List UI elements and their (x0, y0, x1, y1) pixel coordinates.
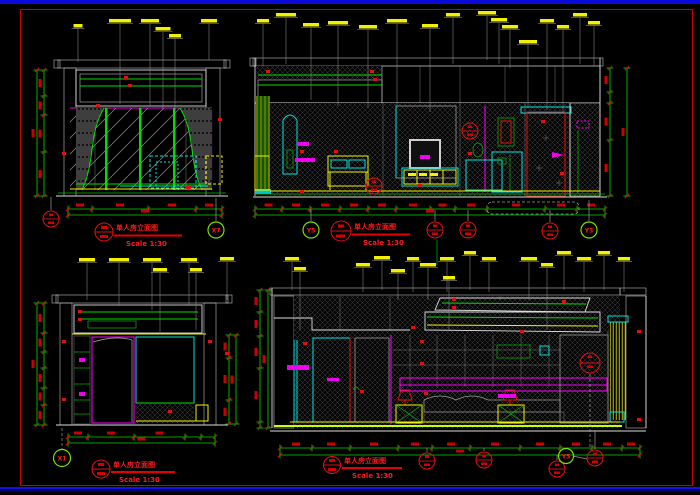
ceiling-slab (253, 58, 603, 66)
annotation-label (294, 267, 306, 271)
dimension-text (255, 297, 258, 305)
dimension-text (39, 393, 42, 401)
wall-left (60, 303, 72, 425)
title-underline (114, 235, 182, 237)
annotation-label (557, 251, 571, 255)
annotation-label (181, 258, 197, 262)
dimension-text (327, 443, 335, 446)
red-note-mark (420, 362, 424, 365)
dimension-text (32, 360, 35, 368)
grid-bubble-y5-top: Y5 (303, 222, 319, 238)
yellow-note-mark (430, 173, 438, 176)
dimension-text (409, 204, 417, 207)
dimension-text (156, 432, 164, 435)
annotation-label (443, 276, 455, 280)
dimension-text (32, 129, 35, 137)
annotation-label (257, 19, 269, 23)
dimension-text (263, 355, 266, 363)
red-note-mark (370, 70, 374, 73)
red-note-mark (520, 330, 524, 333)
annotation-label (491, 18, 507, 22)
red-note-mark (78, 310, 82, 313)
dimension-text (255, 348, 258, 356)
mirror (136, 337, 194, 403)
curtain-strip (256, 96, 270, 192)
annotation-label (391, 269, 405, 273)
annotation-label (201, 19, 217, 23)
wood-trim-strip (74, 336, 90, 424)
dimension-text (39, 79, 42, 87)
dimension-text (321, 204, 329, 207)
title-underline (111, 471, 175, 473)
leader-line (573, 456, 587, 459)
annotation-label (541, 263, 553, 267)
annotation-label (374, 256, 390, 260)
dimension-text (370, 443, 378, 446)
title-block-window-wall: 单人房立面图 Scale 1:30 (95, 223, 182, 248)
dimension-text (627, 443, 635, 446)
annotation-label (540, 19, 554, 23)
red-note-mark (78, 318, 82, 321)
dimension-text (39, 102, 42, 110)
dimension-text (512, 204, 520, 207)
drawing-title: 单人房立面图 (116, 223, 158, 232)
dimension-text (224, 408, 227, 416)
annotation-label (482, 257, 496, 261)
red-note-mark (62, 152, 66, 155)
annotation-label (521, 257, 537, 261)
red-note-mark (373, 78, 377, 81)
annotation-label (573, 13, 587, 17)
title-block-desk-tv-wall: 单人房立面图 Scale 1:30 (331, 221, 410, 247)
red-note-mark (452, 306, 456, 309)
door-leaf-curve (93, 338, 132, 422)
red-note-mark (420, 340, 424, 343)
annotation-label (387, 19, 407, 23)
red-note-mark (452, 298, 456, 301)
annotation-label (74, 24, 83, 28)
status-bar-line (0, 487, 700, 489)
annotation-label (109, 19, 131, 23)
grid-bubble-label: X7 (212, 228, 221, 235)
annotation-label (446, 13, 460, 17)
dimension-text (74, 432, 82, 435)
drawing-canvas: X7 Y5 Y3 X1 Y5 单人房立面图 Scale 1:30 (0, 0, 700, 495)
red-note-mark (300, 150, 304, 153)
magenta-note-mark (79, 358, 85, 362)
red-note-mark (562, 300, 566, 303)
annotation-label (153, 268, 167, 272)
magenta-note-mark (420, 155, 430, 159)
dimension-text (39, 339, 42, 347)
dimension-text (350, 204, 358, 207)
dimension-text (168, 204, 176, 207)
annotation-label (420, 263, 436, 267)
ceiling-bulkhead (258, 80, 382, 103)
annotation-label (190, 268, 202, 272)
annotation-label (143, 258, 161, 262)
annotation-label (464, 251, 476, 255)
dimension-text (378, 204, 386, 207)
dimension-text (39, 130, 42, 138)
red-note-mark (411, 326, 415, 329)
magenta-note-mark (79, 392, 85, 396)
annotation-label (519, 40, 537, 44)
magenta-note-mark (287, 365, 309, 370)
wall-field (294, 296, 620, 428)
dimension-text (536, 443, 544, 446)
wall-right (626, 296, 646, 428)
dimension-text (255, 391, 258, 399)
red-note-mark (128, 84, 132, 87)
ceiling-slab (270, 288, 620, 295)
dimension-text (491, 443, 499, 446)
grid-bubble-label: Y3 (584, 228, 594, 235)
annotation-label (285, 257, 299, 261)
dimension-text (467, 204, 475, 207)
red-note-mark (62, 340, 66, 343)
curtain-pelmet (76, 70, 206, 106)
yellow-note-mark (408, 173, 416, 176)
dimension-text (265, 204, 273, 207)
dimension-text (292, 204, 300, 207)
annotation-label (478, 11, 496, 15)
red-note-mark (225, 352, 229, 355)
dimension-text (292, 443, 300, 446)
vent-grille (88, 321, 136, 328)
dimension-text (138, 438, 146, 441)
dimension-text (255, 320, 258, 328)
red-note-mark (300, 190, 304, 193)
dimension-text (447, 443, 455, 446)
dimension-text (572, 443, 580, 446)
annotation-label (618, 257, 630, 261)
annotation-label (109, 258, 129, 262)
cabinet-small (196, 405, 208, 421)
annotation-label (359, 25, 377, 29)
ceiling-band (382, 66, 600, 103)
note-balloon (487, 202, 579, 214)
red-note-mark (124, 76, 128, 79)
dimension-text (231, 376, 234, 384)
magenta-note-mark (498, 394, 516, 398)
dimension-text (205, 204, 213, 207)
cad-application-window: X7 Y5 Y3 X1 Y5 单人房立面图 Scale 1:30 (0, 0, 700, 495)
magenta-note-mark (327, 378, 339, 381)
dimension-text (605, 76, 608, 84)
annotation-label (577, 257, 591, 261)
dimension-text (439, 204, 447, 207)
dimension-text (76, 204, 84, 207)
grid-bubble-label: Y5 (306, 228, 316, 235)
red-note-mark (186, 186, 191, 189)
annotation-label (220, 257, 234, 261)
drawing-scale: Scale 1:30 (126, 240, 167, 248)
red-note-mark (360, 390, 364, 393)
status-bar-line-2 (0, 490, 700, 492)
grid-bubble-y3: Y3 (581, 222, 597, 238)
annotation-label (598, 251, 610, 255)
elevation-window-wall (54, 60, 230, 196)
dimension-text (603, 443, 611, 446)
drawing-scale: Scale 1:30 (119, 476, 160, 484)
red-note-mark (266, 70, 270, 73)
tv-screen (410, 140, 440, 168)
dimension-text (116, 204, 124, 207)
red-note-mark (218, 118, 222, 121)
annotation-label (79, 258, 95, 262)
drawing-title: 单人房立面图 (354, 222, 396, 231)
ceiling-slab (56, 295, 228, 303)
annotation-label (407, 257, 419, 261)
dimension-text (224, 343, 227, 351)
dimension-text (224, 375, 227, 383)
yellow-note-mark (419, 173, 427, 176)
dimension-text (411, 443, 419, 446)
red-note-mark (96, 104, 100, 107)
dimension-text (605, 164, 608, 172)
red-note-mark (208, 340, 212, 343)
annotation-label (557, 25, 569, 29)
annotation-label (156, 27, 171, 31)
red-note-mark (560, 172, 564, 175)
red-note-mark (468, 152, 472, 155)
dimension-text (426, 210, 434, 213)
annotation-label (502, 25, 518, 29)
dimension-text (39, 374, 42, 382)
wall-right (204, 303, 216, 425)
drawing-title: 单人房立面图 (113, 460, 155, 469)
dimension-text (557, 204, 565, 207)
grid-bubble-x7: X7 (208, 222, 224, 238)
annotation-label (422, 24, 438, 28)
door-opening (92, 337, 134, 423)
title-block-bed-wall: 单人房立面图 Scale 1:30 (324, 456, 403, 480)
red-note-mark (418, 184, 422, 187)
dimension-text (622, 128, 625, 136)
annotation-label (276, 13, 296, 17)
ceiling-slab (58, 60, 226, 68)
red-note-mark (637, 418, 641, 421)
red-note-mark (424, 392, 428, 395)
red-note-mark (541, 120, 545, 123)
title-underline (342, 467, 402, 469)
drawing-scale: Scale 1:30 (352, 472, 393, 480)
annotation-label (141, 19, 159, 23)
magenta-note-mark (295, 158, 315, 162)
curtain-strip (610, 322, 626, 420)
dimension-text (456, 450, 464, 453)
grid-bubble-label: Y5 (561, 454, 571, 461)
red-note-mark (637, 330, 641, 333)
red-note-mark (168, 410, 172, 413)
annotation-label (169, 34, 181, 38)
annotation-label (588, 21, 600, 25)
red-note-mark (303, 342, 307, 345)
grid-bubble-label: X1 (58, 456, 67, 463)
title-underline (352, 234, 410, 236)
dimension-text (39, 314, 42, 322)
dimension-text (39, 170, 42, 178)
dimension-text (141, 210, 149, 213)
grid-bubble-y5-bottom: Y5 (559, 449, 574, 464)
annotation-label (303, 23, 319, 27)
drawing-scale: Scale 1:30 (363, 239, 404, 247)
magenta-note-mark (297, 142, 309, 146)
elevation-bed-wall (270, 240, 646, 431)
annotation-label (356, 263, 370, 267)
title-block-wardrobe-wall: 单人房立面图 Scale 1:30 (92, 460, 175, 484)
red-note-mark (334, 150, 338, 153)
drawing-title: 单人房立面图 (344, 456, 386, 465)
dimension-text (39, 411, 42, 419)
annotation-label (440, 257, 454, 261)
wall-left (274, 296, 294, 428)
dimension-text (587, 204, 595, 207)
grid-bubble-x1: X1 (54, 450, 71, 467)
dimension-text (605, 118, 608, 126)
red-note-mark (62, 398, 66, 401)
dimension-text (107, 432, 115, 435)
annotation-label (328, 21, 348, 25)
